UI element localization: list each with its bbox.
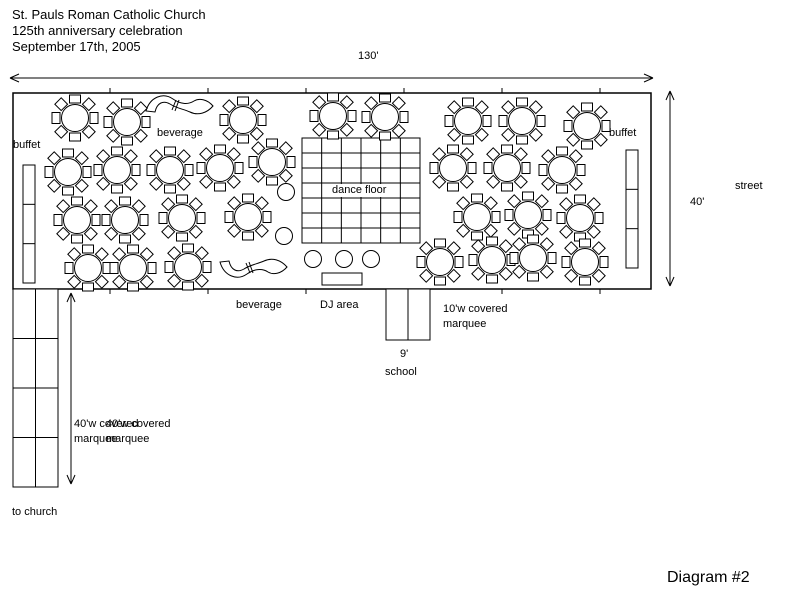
chair [348,111,356,122]
cocktail-table [278,184,295,201]
chair [83,283,94,291]
school-width-label: 9' [400,348,408,361]
arrowhead-icon [67,475,71,484]
table-top [64,207,91,234]
chair [487,237,498,245]
chair [417,257,425,268]
diagram-number-label: Diagram #2 [667,569,750,587]
chair [197,213,205,224]
chair [238,135,249,143]
marquee40-label-copy-b: 40'w covered marquee [106,417,170,447]
arrowhead-icon [71,293,75,302]
chair [140,215,148,226]
chair [165,262,173,273]
round-table-8-chairs [499,98,545,144]
chair [537,116,545,127]
arrowhead-icon [644,78,653,82]
marquee10-line-1: 10'w covered [443,302,507,317]
round-table-8-chairs [562,239,608,285]
round-table-8-chairs [445,98,491,144]
chair [267,177,278,185]
round-table-8-chairs [159,195,205,241]
height-dimension-label: 40' [690,196,704,209]
chair [183,282,194,290]
round-table-8-chairs [147,147,193,193]
chair [258,115,266,126]
round-table-8-chairs [510,235,556,281]
cocktail-table [336,251,353,268]
round-table-8-chairs [110,245,156,291]
buffet-left-label: buffet [13,139,40,152]
table-top [520,245,547,272]
round-table-8-chairs [45,149,91,195]
chair [104,117,112,128]
chair [177,233,188,241]
chair [287,157,295,168]
round-table-8-chairs [197,145,243,191]
title-line-1: St. Pauls Roman Catholic Church [12,7,206,23]
chair [468,163,476,174]
chair [582,141,593,149]
beverage-serpentine-table [146,96,213,114]
chair [505,210,513,221]
chair [528,273,539,281]
chair [463,136,474,144]
chair [448,145,459,153]
chair [522,163,530,174]
table-top [169,205,196,232]
chair [83,245,94,253]
round-table-8-chairs [52,95,98,141]
chair [90,113,98,124]
chair [147,165,155,176]
chair [483,116,491,127]
chair [492,212,500,223]
chair [102,215,110,226]
round-table-8-chairs [505,192,551,238]
chair [238,97,249,105]
chair [165,185,176,193]
chair [580,239,591,247]
school-label: school [385,366,417,379]
chair [165,147,176,155]
chair [499,116,507,127]
table-top [104,157,131,184]
title-line-2: 125th anniversary celebration [12,23,206,39]
chair [454,212,462,223]
round-table-8-chairs [104,99,150,145]
width-dimension-label: 130' [358,50,378,63]
chair [112,147,123,155]
chair [582,103,593,111]
table-top [230,107,257,134]
chair [548,253,556,264]
chair [177,195,188,203]
round-table-8-chairs [539,147,585,193]
dj-area-label: DJ area [320,299,359,312]
chair [225,212,233,223]
chair [132,165,140,176]
chair [575,195,586,203]
table-top [175,254,202,281]
beverage-bottom-label: beverage [236,299,282,312]
chair [215,145,226,153]
chair [148,263,156,274]
chair [120,197,131,205]
marquee40-b-line-1: 40'w covered [106,417,170,432]
title-line-3: September 17th, 2005 [12,39,206,55]
chair [142,117,150,128]
table-top [509,108,536,135]
diagram-linework [0,0,799,604]
marquee10-label: 10'w covered marquee [443,302,507,332]
chair [122,137,133,145]
table-top [572,249,599,276]
round-table-8-chairs [310,93,356,139]
chair [92,215,100,226]
street-label: street [735,180,763,193]
arrowhead-icon [670,91,674,100]
chair [120,235,131,243]
chair [310,111,318,122]
round-table-8-chairs [102,197,148,243]
chair [52,113,60,124]
chair [557,213,565,224]
chair [159,213,167,224]
table-top [372,104,399,131]
chair [517,136,528,144]
chair [448,183,459,191]
round-table-8-chairs [249,139,295,185]
chair [523,192,534,200]
table-top [55,159,82,186]
chair [435,277,446,285]
cocktail-table [276,228,293,245]
table-top [120,255,147,282]
chair [243,232,254,240]
round-table-8-chairs [220,97,266,143]
chair [110,263,118,274]
table-top [455,108,482,135]
chair [83,167,91,178]
chair [557,147,568,155]
chair [362,112,370,123]
round-table-8-chairs [469,237,515,283]
chair [215,183,226,191]
table-top [464,204,491,231]
table-top [112,207,139,234]
dance-floor-label: dance floor [330,184,388,197]
round-table-8-chairs [557,195,603,241]
marquee40-b-line-2: marquee [106,432,170,447]
chair [63,187,74,195]
chair [94,165,102,176]
arrowhead-icon [67,293,71,302]
table-top [75,255,102,282]
arrowhead-icon [670,277,674,286]
cocktail-table [363,251,380,268]
table-top [427,249,454,276]
round-table-8-chairs [54,197,100,243]
chair [539,165,547,176]
table-top [320,103,347,130]
chair [502,183,513,191]
round-table-8-chairs [65,245,111,291]
chair [128,245,139,253]
round-table-8-chairs [94,147,140,193]
arrowhead-icon [71,475,75,484]
table-top [259,149,286,176]
table-top [62,105,89,132]
arrowhead-icon [666,277,670,286]
chair [595,213,603,224]
dj-table [322,273,362,285]
table-top [235,204,262,231]
table-top [440,155,467,182]
round-table-8-chairs [225,194,271,240]
beverage-top-label: beverage [157,127,203,140]
chair [267,139,278,147]
table-top [549,157,576,184]
to-church-label: to church [12,506,57,519]
chair [484,163,492,174]
chair [472,194,483,202]
chair [463,98,474,106]
table-top [114,109,141,136]
round-table-8-chairs [454,194,500,240]
chair [435,239,446,247]
chair [328,131,339,139]
chair [510,253,518,264]
arrowhead-icon [644,74,653,78]
chair [197,163,205,174]
chair [328,93,339,101]
diagram-title: St. Pauls Roman Catholic Church 125th an… [12,7,206,55]
table-top [574,113,601,140]
buffet-table-right [626,150,638,268]
arrowhead-icon [666,91,670,100]
arrowhead-icon [10,74,19,78]
chair [502,145,513,153]
chair [487,275,498,283]
marquee10-line-2: marquee [443,317,507,332]
chair [220,115,228,126]
chair [112,185,123,193]
arrowhead-icon [10,78,19,82]
chair [380,132,391,140]
floor-plan-diagram: St. Pauls Roman Catholic Church 125th an… [0,0,799,604]
chair [45,167,53,178]
chair [600,257,608,268]
chair [122,99,133,107]
chair [517,98,528,106]
round-table-8-chairs [417,239,463,285]
chair [580,277,591,285]
chair [430,163,438,174]
chair [183,244,194,252]
chair [243,194,254,202]
chair [472,232,483,240]
table-top [157,157,184,184]
table-top [207,155,234,182]
chair [63,149,74,157]
round-table-8-chairs [484,145,530,191]
chair [557,185,568,193]
chair [235,163,243,174]
chair [70,133,81,141]
beverage-serpentine-table [220,259,287,277]
table-top [479,247,506,274]
table-top [494,155,521,182]
chair [185,165,193,176]
chair [445,116,453,127]
chair [469,255,477,266]
chair [528,235,539,243]
chair [400,112,408,123]
chair [562,257,570,268]
chair [263,212,271,223]
chair [455,257,463,268]
table-top [567,205,594,232]
round-table-8-chairs [430,145,476,191]
chair [65,263,73,274]
chair [577,165,585,176]
table-top [515,202,542,229]
chair [54,215,62,226]
round-table-8-chairs [362,94,408,140]
chair [70,95,81,103]
chair [564,121,572,132]
chair [203,262,211,273]
chair [128,283,139,291]
chair [249,157,257,168]
round-table-8-chairs [165,244,211,290]
buffet-right-label: buffet [609,127,636,140]
chair [543,210,551,221]
chair [72,235,83,243]
round-table-8-chairs [564,103,610,149]
buffet-table-left [23,165,35,283]
chair [380,94,391,102]
chair [72,197,83,205]
cocktail-table [305,251,322,268]
